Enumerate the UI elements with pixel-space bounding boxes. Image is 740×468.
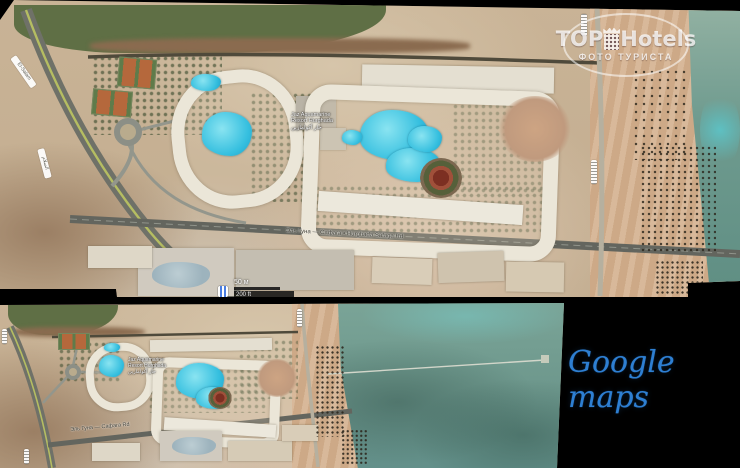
- watermark-ellipse: [563, 13, 689, 77]
- road-label-pill: [297, 309, 302, 327]
- hotel-label-line: جاز أكوامارين: [128, 370, 166, 376]
- scale-bar: [234, 287, 280, 290]
- road-label-pill: [2, 329, 7, 344]
- building-block: [506, 261, 565, 292]
- tennis-courts: [91, 88, 133, 117]
- beach-umbrella-grid: [341, 429, 368, 465]
- construction-pool: [172, 437, 216, 455]
- beach-umbrellas: [640, 145, 716, 253]
- right-resort-north-wing: [150, 338, 272, 352]
- pier-platform: [541, 355, 549, 363]
- hotel-label-line: جاز أكوامارين: [291, 125, 333, 131]
- map-poi-icon: [218, 286, 228, 297]
- road-label-pill: [591, 160, 597, 184]
- pier: [328, 360, 545, 374]
- aqua-park-pool-arm: [408, 126, 442, 152]
- scale-metric-label: 50 м: [234, 279, 294, 286]
- building-block: [372, 257, 433, 285]
- left-resort-pool-small: [104, 343, 120, 352]
- beach-umbrellas: [315, 345, 345, 437]
- building-block: [228, 441, 292, 461]
- hotel-map-label: Jaz Aquamarine Resort Hurghada جاز أكوام…: [291, 112, 333, 131]
- satellite-photo-top: El-Salam السلام Эль Гуна — Сафага • Hurg…: [0, 0, 740, 298]
- beach-umbrella-grid: [655, 260, 703, 294]
- roundabout: [117, 121, 139, 143]
- building-block: [437, 251, 504, 283]
- garden-plaza: [256, 359, 298, 397]
- garden-plaza: [498, 96, 572, 162]
- tennis-courts: [117, 56, 157, 89]
- building-block: [88, 246, 152, 268]
- small-pool: [342, 130, 362, 145]
- left-resort-pool: [99, 355, 124, 377]
- el-salam-highway: [10, 327, 52, 468]
- amphitheater: [420, 158, 462, 198]
- left-resort-lagoon-pool: [202, 112, 252, 156]
- building-block: [92, 443, 140, 461]
- google-maps-caption: Google maps: [568, 350, 738, 410]
- tennis-courts: [58, 333, 90, 350]
- satellite-photo-bottom: Эль Гуна — Сафага Rd Jaz Aquamarine Reso…: [0, 303, 568, 468]
- road-label-pill: [24, 449, 29, 464]
- hotel-label-line: Resort Hurghada: [291, 118, 333, 124]
- construction-pool: [152, 262, 210, 288]
- amphitheater: [208, 387, 232, 409]
- left-resort-pool-small: [191, 74, 221, 91]
- boundary-wall: [88, 55, 600, 63]
- tophotels-watermark: TOP Hotels ФОТО ТУРИСТА: [563, 13, 689, 77]
- roundabout: [67, 366, 79, 378]
- building-block: [282, 425, 318, 441]
- scale-imperial-label: 200 ft: [234, 291, 294, 298]
- hotel-tower-with-crown-icon: [604, 34, 619, 50]
- caption-text: Google maps: [568, 345, 738, 415]
- hotel-map-label: Jaz Aquamarine Resort Hurghada جاز أكوام…: [128, 358, 166, 375]
- map-scale-control: 50 м 200 ft: [234, 279, 294, 298]
- connector-road: [43, 377, 67, 403]
